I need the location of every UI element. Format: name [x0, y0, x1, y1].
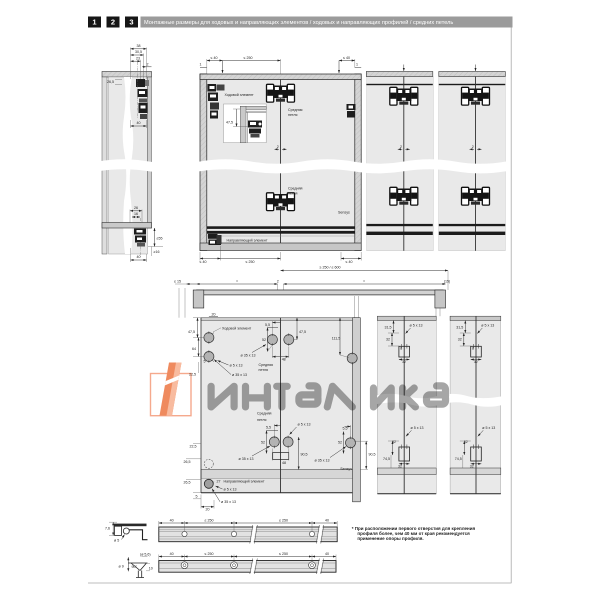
svg-text:2: 2	[277, 279, 279, 283]
svg-text:ø 5 x 13: ø 5 x 13	[481, 324, 494, 328]
svg-text:47,5: 47,5	[188, 330, 195, 334]
svg-text:петля: петля	[288, 113, 297, 117]
svg-text:26,5: 26,5	[184, 481, 191, 485]
svg-text:111,5: 111,5	[332, 336, 340, 340]
svg-text:8: 8	[472, 347, 474, 351]
svg-text:32: 32	[386, 338, 390, 342]
svg-text:27: 27	[217, 480, 221, 484]
svg-text:5,5: 5,5	[343, 427, 348, 431]
svg-text:=: =	[363, 279, 365, 283]
svg-text:31,5: 31,5	[385, 326, 392, 330]
svg-text:ø 35 x 13: ø 35 x 13	[315, 459, 330, 463]
svg-text:40: 40	[137, 255, 141, 259]
svg-text:Средняя: Средняя	[259, 363, 274, 367]
svg-text:≥ 250 / ≤ 600: ≥ 250 / ≤ 600	[320, 265, 341, 269]
svg-text:38: 38	[137, 44, 141, 48]
svg-text:2: 2	[147, 63, 149, 67]
svg-text:ø 35 x 13: ø 35 x 13	[239, 457, 254, 461]
svg-text:Направляющий элемент: Направляющий элемент	[224, 480, 265, 484]
svg-text:петля: петля	[257, 418, 266, 422]
svg-text:≤ 250: ≤ 250	[205, 552, 214, 556]
svg-text:≤ 40: ≤ 40	[346, 260, 353, 264]
svg-text:20: 20	[212, 312, 216, 316]
svg-text:≤ 250: ≤ 250	[244, 56, 253, 60]
svg-text:5,5: 5,5	[265, 323, 270, 327]
svg-text:40: 40	[137, 121, 141, 125]
svg-text:(15): (15)	[444, 279, 450, 283]
svg-text:47,5: 47,5	[299, 330, 306, 334]
svg-text:40: 40	[325, 552, 329, 556]
svg-text:22,5: 22,5	[190, 445, 197, 449]
svg-text:ø 5 x 13: ø 5 x 13	[410, 324, 423, 328]
svg-text:32: 32	[458, 338, 462, 342]
svg-text:64: 64	[192, 347, 196, 351]
svg-text:48: 48	[282, 358, 286, 362]
svg-text:петля: петля	[259, 368, 268, 372]
svg-text:74,5: 74,5	[383, 457, 390, 461]
svg-text:2: 2	[472, 145, 474, 149]
svg-text:1: 1	[356, 63, 358, 67]
svg-text:52: 52	[261, 441, 265, 445]
svg-text:5,5: 5,5	[266, 426, 271, 430]
svg-text:23: 23	[136, 56, 140, 60]
svg-text:5: 5	[196, 495, 198, 499]
svg-text:2: 2	[111, 18, 115, 27]
svg-text:52: 52	[338, 441, 342, 445]
svg-text:32: 32	[398, 464, 402, 468]
svg-text:8: 8	[400, 347, 402, 351]
svg-text:40: 40	[325, 519, 329, 523]
svg-text:30,5: 30,5	[135, 50, 142, 54]
svg-text:(ø 5,6): (ø 5,6)	[140, 553, 151, 557]
svg-text:52: 52	[262, 338, 266, 342]
svg-text:74,5: 74,5	[455, 457, 462, 461]
svg-text:≤ 40: ≤ 40	[343, 56, 350, 60]
svg-text:≥16: ≥16	[154, 250, 160, 254]
svg-text:ø 5 x 13: ø 5 x 13	[230, 364, 243, 368]
svg-text:Направляющий элемент: Направляющий элемент	[227, 239, 268, 243]
svg-text:20: 20	[206, 507, 210, 511]
svg-text:ø 5 x 13: ø 5 x 13	[482, 426, 495, 430]
svg-text:3: 3	[129, 18, 133, 27]
svg-text:петля: петля	[288, 192, 297, 196]
svg-text:≤ 250: ≤ 250	[205, 519, 214, 523]
svg-text:Ходовой элемент: Ходовой элемент	[222, 326, 252, 330]
svg-text:≤ 250: ≤ 250	[279, 519, 288, 523]
svg-text:ø 5: ø 5	[114, 539, 119, 543]
svg-text:Sensys: Sensys	[338, 211, 350, 215]
svg-text:31,5: 31,5	[456, 326, 463, 330]
svg-text:40: 40	[170, 519, 174, 523]
svg-text:≤ 250: ≤ 250	[279, 552, 288, 556]
svg-text:48: 48	[282, 461, 286, 465]
svg-text:10: 10	[149, 567, 153, 571]
svg-text:2: 2	[400, 145, 402, 149]
svg-text:ø 5 x 13: ø 5 x 13	[411, 426, 424, 430]
svg-text:Sensys: Sensys	[340, 467, 352, 471]
svg-text:ø 5 x 13: ø 5 x 13	[298, 423, 311, 427]
svg-text:Средняя: Средняя	[288, 108, 303, 112]
svg-text:40: 40	[170, 552, 174, 556]
svg-text:≤ 250: ≤ 250	[246, 260, 255, 264]
svg-text:32: 32	[470, 464, 474, 468]
svg-text:32: 32	[402, 360, 406, 364]
svg-text:применение опоры профиля.: применение опоры профиля.	[357, 535, 423, 541]
svg-text:32: 32	[474, 360, 478, 364]
svg-text:16: 16	[134, 212, 138, 216]
svg-text:ø 5 x 13: ø 5 x 13	[224, 488, 237, 492]
svg-text:ø 9: ø 9	[119, 564, 124, 568]
svg-text:≤ 40: ≤ 40	[211, 56, 218, 60]
svg-text:Средняя: Средняя	[257, 412, 272, 416]
svg-text:5: 5	[204, 360, 206, 364]
svg-text:Средняя: Средняя	[288, 187, 303, 191]
svg-text:≤ 15: ≤ 15	[174, 279, 181, 283]
svg-text:26,5: 26,5	[107, 80, 114, 84]
svg-text:1: 1	[92, 18, 96, 27]
svg-text:90,5: 90,5	[301, 452, 308, 456]
svg-text:ø 35 x 13: ø 35 x 13	[221, 500, 236, 504]
svg-text:ø 35 x 13: ø 35 x 13	[232, 373, 247, 377]
svg-text:Монтажные размеры для ходовых: Монтажные размеры для ходовых и направля…	[144, 19, 453, 26]
svg-text:26,5: 26,5	[184, 460, 191, 464]
svg-text:26: 26	[134, 206, 138, 210]
svg-text:Ходовой элемент: Ходовой элемент	[225, 93, 255, 97]
svg-text:ø 35 x 13: ø 35 x 13	[241, 353, 256, 357]
svg-text:≤ 40: ≤ 40	[200, 260, 207, 264]
svg-text:≤55: ≤55	[157, 237, 163, 241]
svg-text:1: 1	[200, 63, 202, 67]
svg-text:47,5: 47,5	[226, 121, 233, 125]
svg-text:7,6: 7,6	[105, 527, 110, 531]
svg-text:=: =	[236, 279, 238, 283]
svg-text:90°: 90°	[132, 565, 138, 569]
svg-text:2: 2	[277, 145, 279, 149]
svg-text:90,5: 90,5	[369, 452, 376, 456]
